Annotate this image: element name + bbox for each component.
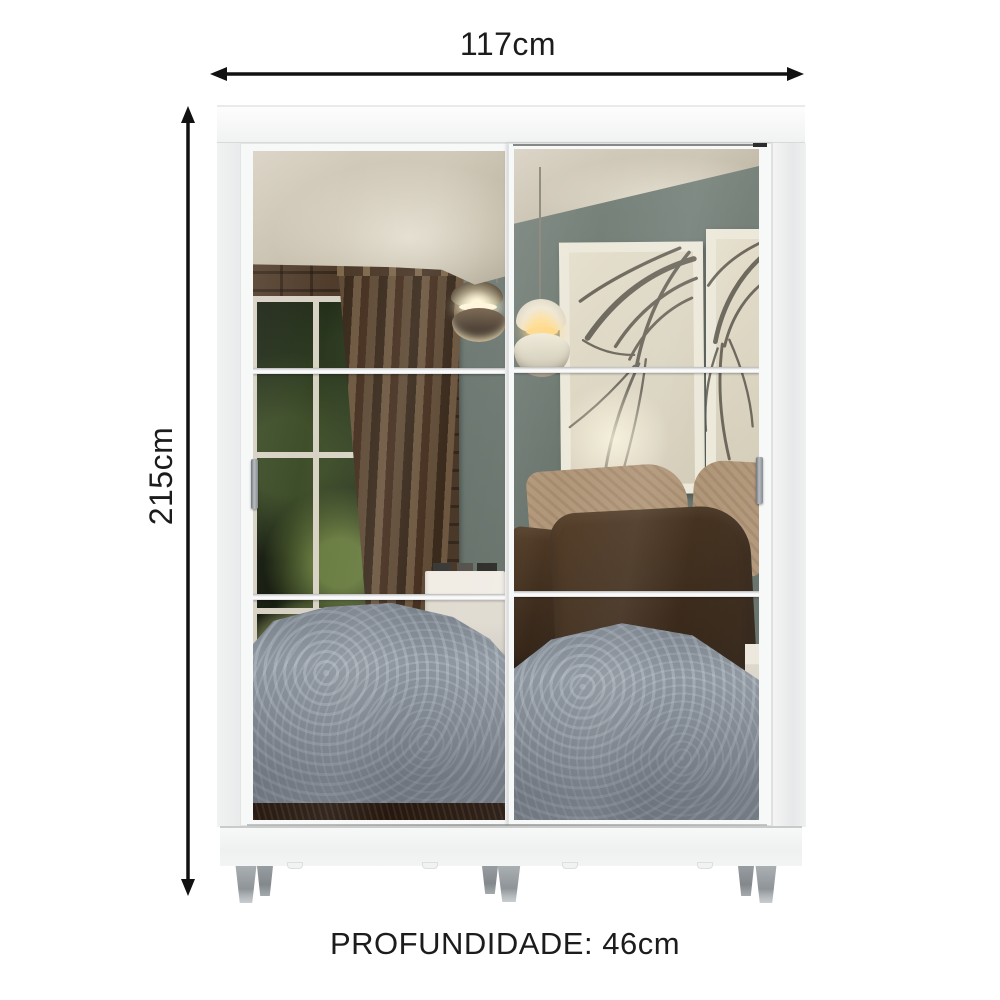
mirror-glass-sheen [514, 149, 759, 820]
wardrobe-left-side-panel [217, 143, 242, 827]
sliding-door-track [513, 144, 765, 146]
depth-dimension-label: PROFUNDIDADE: 46cm [255, 926, 755, 962]
left-door-mirror [253, 151, 505, 820]
wardrobe-leg [233, 866, 259, 903]
wardrobe-leg [753, 866, 779, 903]
wardrobe-right-side-panel [772, 143, 806, 827]
width-arrow-icon [210, 65, 804, 83]
wardrobe-leg [480, 866, 500, 894]
left-sliding-door [240, 143, 510, 826]
wardrobe-base-panel [220, 826, 802, 866]
width-dimension-label: 117cm [408, 26, 608, 63]
height-arrow-icon [179, 106, 197, 896]
wardrobe-leg [255, 866, 275, 896]
product-dimension-diagram: 117cm 215cm PROFUNDIDADE: 46cm [0, 0, 1000, 1000]
wardrobe-top-panel [217, 105, 805, 143]
sliding-door-track-stop [753, 143, 767, 147]
wardrobe-leg [495, 866, 523, 902]
mirror-glass-sheen [253, 151, 505, 820]
height-dimension-label: 215cm [143, 391, 179, 561]
base-glide-tab [422, 862, 438, 869]
right-door-mirror [514, 149, 759, 820]
wardrobe-product-image [217, 105, 805, 867]
base-glide-tab [287, 862, 303, 869]
base-glide-tab [562, 862, 578, 869]
left-door-handle [251, 459, 258, 509]
right-sliding-door [508, 143, 772, 826]
base-glide-tab [697, 862, 713, 869]
right-door-handle [756, 457, 763, 504]
wardrobe-leg [736, 866, 756, 896]
